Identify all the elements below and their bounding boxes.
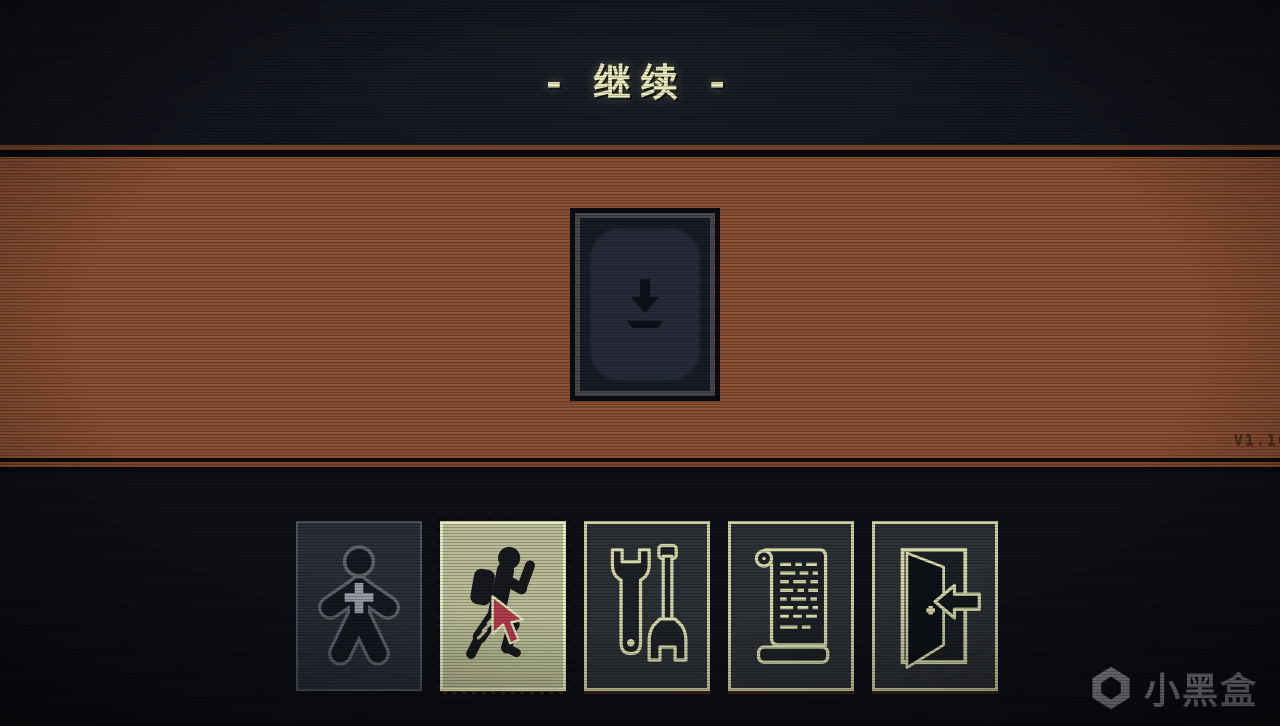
version-label: V1.10 (1234, 431, 1280, 449)
download-arrow-icon (623, 277, 667, 333)
card-back (591, 229, 699, 380)
watermark: 小黑盒 (1088, 662, 1258, 714)
scroll-icon (743, 539, 839, 673)
game-screen: - 继续 - V1.10 (0, 0, 1280, 726)
exit-button[interactable] (872, 521, 998, 691)
continue-journey-button[interactable] (440, 521, 566, 691)
watermark-brand-text: 小黑盒 (1144, 662, 1258, 714)
band-top-gap (0, 150, 1280, 157)
person-plus-icon (313, 541, 405, 671)
red-pointer-cursor-icon (489, 594, 529, 648)
card-frame (575, 213, 715, 396)
continue-card-button[interactable] (570, 208, 720, 401)
heybox-logo-icon (1088, 662, 1134, 714)
log-button[interactable] (728, 521, 854, 691)
menu-toolbar (296, 521, 998, 691)
exit-door-icon (887, 539, 983, 673)
status-button[interactable] (296, 521, 422, 691)
band-bottom-edge (0, 467, 1280, 472)
page-title: - 继续 - (0, 52, 1280, 107)
wrench-tools-icon (599, 539, 695, 673)
tools-button[interactable] (584, 521, 710, 691)
